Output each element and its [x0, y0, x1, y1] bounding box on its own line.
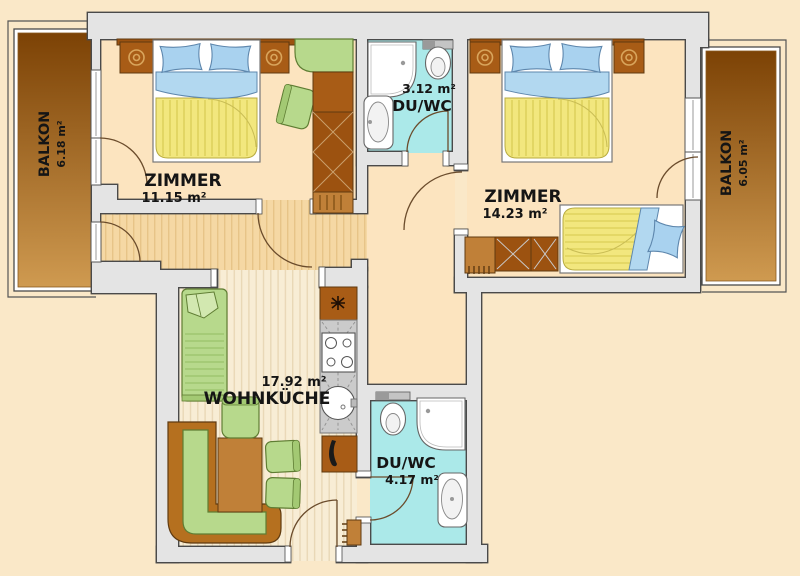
dining-chair [265, 477, 300, 508]
dining-table [218, 438, 262, 512]
vent-icon [331, 296, 345, 310]
balcony-right-label: BALKON [719, 130, 735, 197]
bath-top-area: 3.12 m² [402, 81, 456, 96]
bath-bottom-area: 4.17 m² [385, 472, 439, 487]
single-bed [560, 205, 684, 273]
pillow [560, 44, 602, 73]
double-bed-left [153, 40, 260, 162]
wardrobe-right [495, 237, 558, 271]
pillow [510, 44, 551, 72]
pillow [160, 44, 202, 73]
bath-bottom-label: DU/WC [376, 454, 436, 472]
balcony-left-area: 6.18 m² [55, 120, 68, 167]
balcony-door-hallway [91, 222, 101, 262]
stove [322, 333, 355, 372]
bath-top-label: DU/WC [392, 97, 452, 115]
bedroom-right-label: ZIMMER [484, 187, 561, 207]
nightstand [259, 42, 289, 73]
balcony-right-area: 6.05 m² [737, 139, 750, 186]
balcony-door-bedroom-left [91, 138, 101, 185]
nightstand [470, 42, 500, 73]
pillow [209, 44, 250, 72]
sink [364, 96, 393, 149]
floor-plan-canvas: ZIMMER 11.15 m² 3.12 m² DU/WC ZIMMER 14.… [0, 0, 800, 576]
floor-plan: ZIMMER 11.15 m² 3.12 m² DU/WC ZIMMER 14.… [0, 0, 800, 576]
living-kitchen-area: 17.92 m² [262, 375, 327, 390]
window-bedroom-right [685, 98, 701, 152]
sink [438, 473, 467, 527]
nightstand [120, 42, 153, 73]
bedroom-right-area: 14.23 m² [483, 207, 548, 222]
bedroom-left-label: ZIMMER [144, 171, 221, 191]
wardrobe-left [313, 72, 353, 213]
balcony-left-label: BALKON [37, 111, 53, 178]
window-bedroom-left [91, 70, 101, 138]
dresser-radiator [465, 237, 495, 274]
dining-chair [265, 440, 301, 473]
bedroom-left-area: 11.15 m² [142, 191, 207, 206]
double-bed-right [502, 40, 612, 162]
entrance-threshold-floor [290, 547, 337, 561]
balcony-door-bedroom-right [685, 152, 701, 200]
living-kitchen-label: WOHNKÜCHE [204, 387, 331, 409]
shower [417, 398, 465, 450]
desk [295, 39, 353, 72]
sofa [182, 289, 227, 401]
corridor-floor [367, 152, 455, 292]
nightstand [614, 42, 644, 73]
